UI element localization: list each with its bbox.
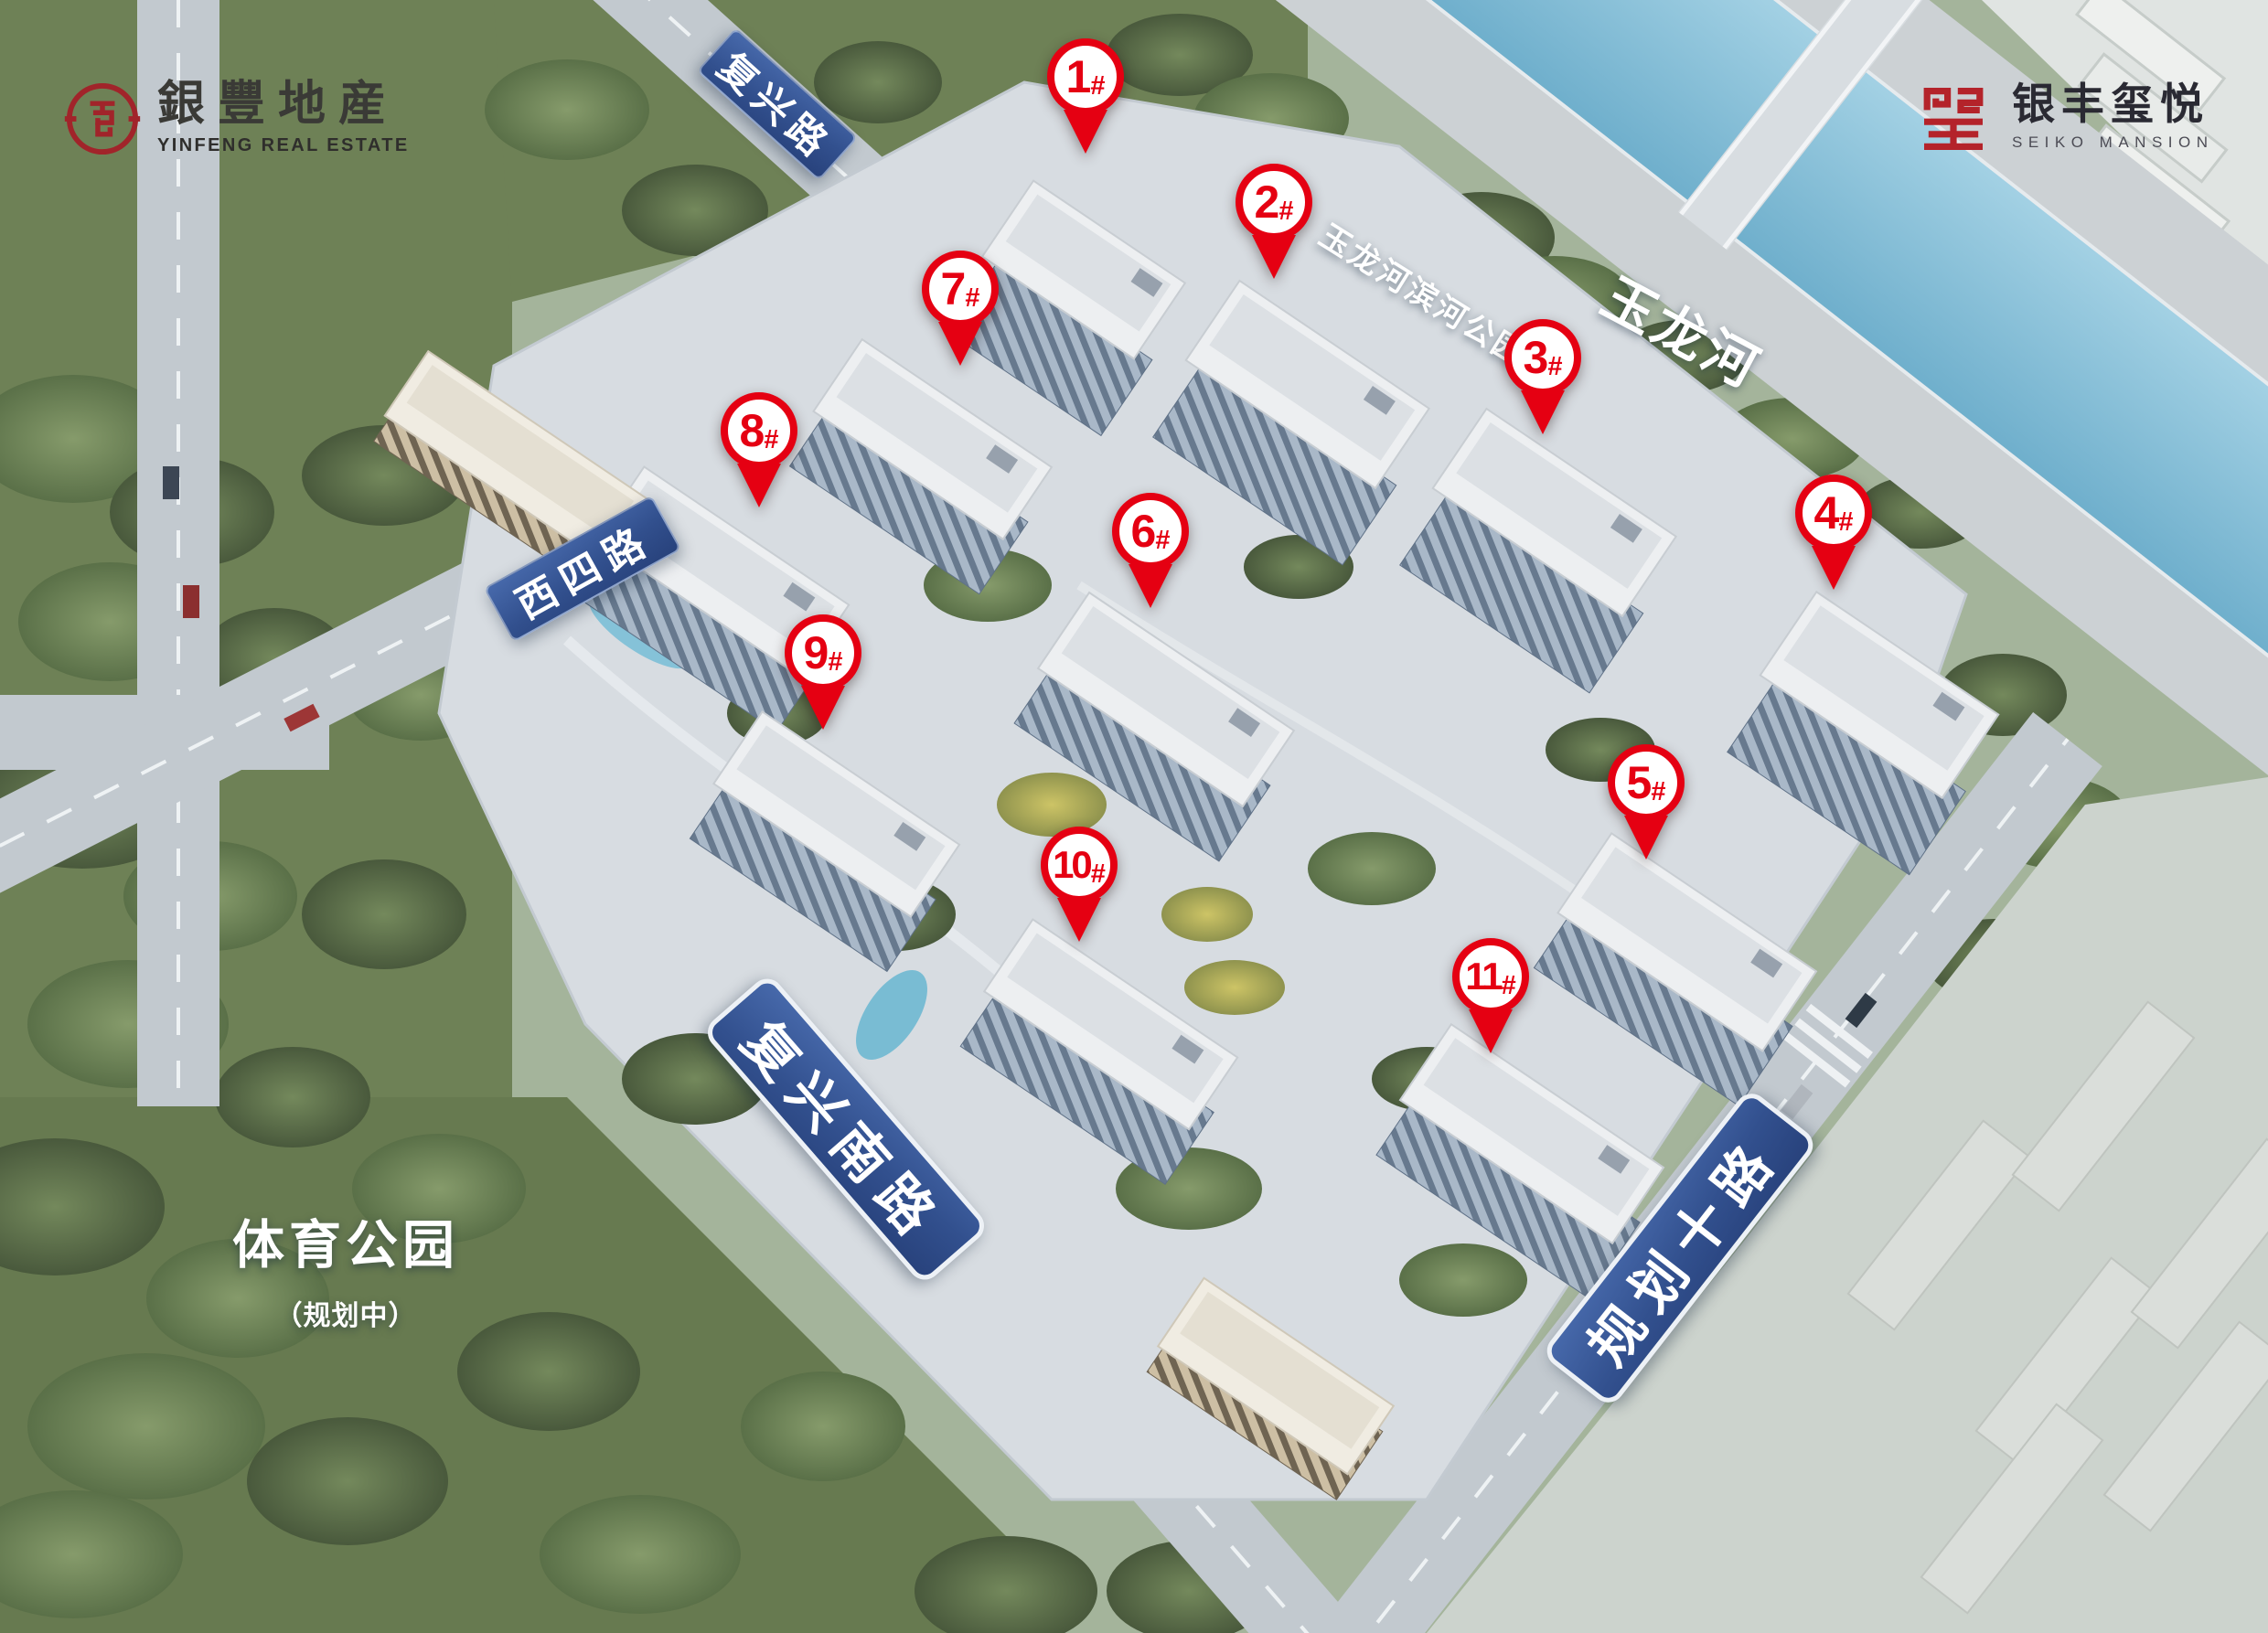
building-number: 3 <box>1524 335 1547 380</box>
marker-circle: 2 # <box>1236 164 1312 240</box>
marker-circle: 9 # <box>785 614 861 691</box>
project-name-en: SEIKO MANSION <box>2012 133 2214 152</box>
building-marker-1[interactable]: 1 # <box>1047 38 1124 154</box>
marker-circle: 10 # <box>1041 827 1118 903</box>
hash-suffix: # <box>965 285 979 312</box>
marker-circle: 6 # <box>1112 493 1189 570</box>
hash-suffix: # <box>1651 779 1665 806</box>
building-marker-2[interactable]: 2 # <box>1236 164 1312 279</box>
building-number: 7 <box>941 266 965 312</box>
marker-tail <box>1521 390 1565 434</box>
building-marker-4[interactable]: 4 # <box>1795 475 1872 590</box>
hash-suffix: # <box>1090 73 1105 100</box>
site-plan-rendering <box>0 0 2268 1633</box>
building-marker-7[interactable]: 7 # <box>922 251 999 366</box>
developer-name-en: YINFENG REAL ESTATE <box>157 135 410 156</box>
hash-suffix: # <box>1091 861 1106 888</box>
masterplan-poster: 銀豐地産 YINFENG REAL ESTATE 银丰玺悦 SEIKO MANS… <box>0 0 2268 1633</box>
marker-circle: 5 # <box>1608 744 1685 821</box>
building-number: 4 <box>1814 490 1838 536</box>
marker-tail <box>737 464 781 507</box>
building-number: 5 <box>1627 760 1651 806</box>
developer-logo: 銀豐地産 YINFENG REAL ESTATE <box>64 80 410 157</box>
building-number: 9 <box>804 630 828 676</box>
marker-tail <box>1812 546 1856 590</box>
marker-tail <box>1624 816 1668 859</box>
building-marker-3[interactable]: 3 # <box>1504 319 1581 434</box>
marker-circle: 1 # <box>1047 38 1124 115</box>
marker-tail <box>1064 110 1107 154</box>
building-number: 2 <box>1255 179 1278 225</box>
hash-suffix: # <box>1838 509 1853 536</box>
marker-circle: 11 # <box>1452 938 1529 1015</box>
sports-park-subtitle: （规划中） <box>227 1293 465 1333</box>
developer-name-cn: 銀豐地産 <box>157 80 410 128</box>
marker-circle: 8 # <box>721 392 797 469</box>
developer-seal-icon <box>64 80 141 157</box>
hash-suffix: # <box>828 649 842 676</box>
marker-tail <box>1469 1009 1513 1053</box>
marker-tail <box>801 686 845 730</box>
hash-suffix: # <box>1502 973 1516 999</box>
marker-circle: 7 # <box>922 251 999 327</box>
hash-suffix: # <box>1155 528 1170 554</box>
marker-circle: 4 # <box>1795 475 1872 551</box>
building-marker-5[interactable]: 5 # <box>1608 744 1685 859</box>
building-number: 8 <box>740 408 764 454</box>
sports-park-title: 体育公园 <box>227 1203 465 1278</box>
building-number: 1 <box>1066 54 1090 100</box>
marker-tail <box>938 322 982 366</box>
marker-tail <box>1057 898 1101 942</box>
project-name-cn: 银丰玺悦 <box>2012 82 2214 127</box>
hash-suffix: # <box>764 427 778 454</box>
building-marker-11[interactable]: 11 # <box>1452 938 1529 1053</box>
building-marker-9[interactable]: 9 # <box>785 614 861 730</box>
marker-tail <box>1252 235 1296 279</box>
project-seal-icon <box>1917 82 1990 155</box>
project-logo: 银丰玺悦 SEIKO MANSION <box>1917 82 2214 155</box>
sports-park-label: 体育公园 （规划中） <box>227 1203 465 1333</box>
building-number: 6 <box>1131 508 1155 554</box>
marker-tail <box>1129 564 1172 608</box>
building-number: 10 <box>1053 846 1090 884</box>
building-marker-10[interactable]: 10 # <box>1041 827 1118 942</box>
building-marker-6[interactable]: 6 # <box>1112 493 1189 608</box>
hash-suffix: # <box>1547 354 1562 380</box>
marker-circle: 3 # <box>1504 319 1581 396</box>
hash-suffix: # <box>1278 198 1293 225</box>
building-marker-8[interactable]: 8 # <box>721 392 797 507</box>
building-number: 11 <box>1465 957 1500 996</box>
